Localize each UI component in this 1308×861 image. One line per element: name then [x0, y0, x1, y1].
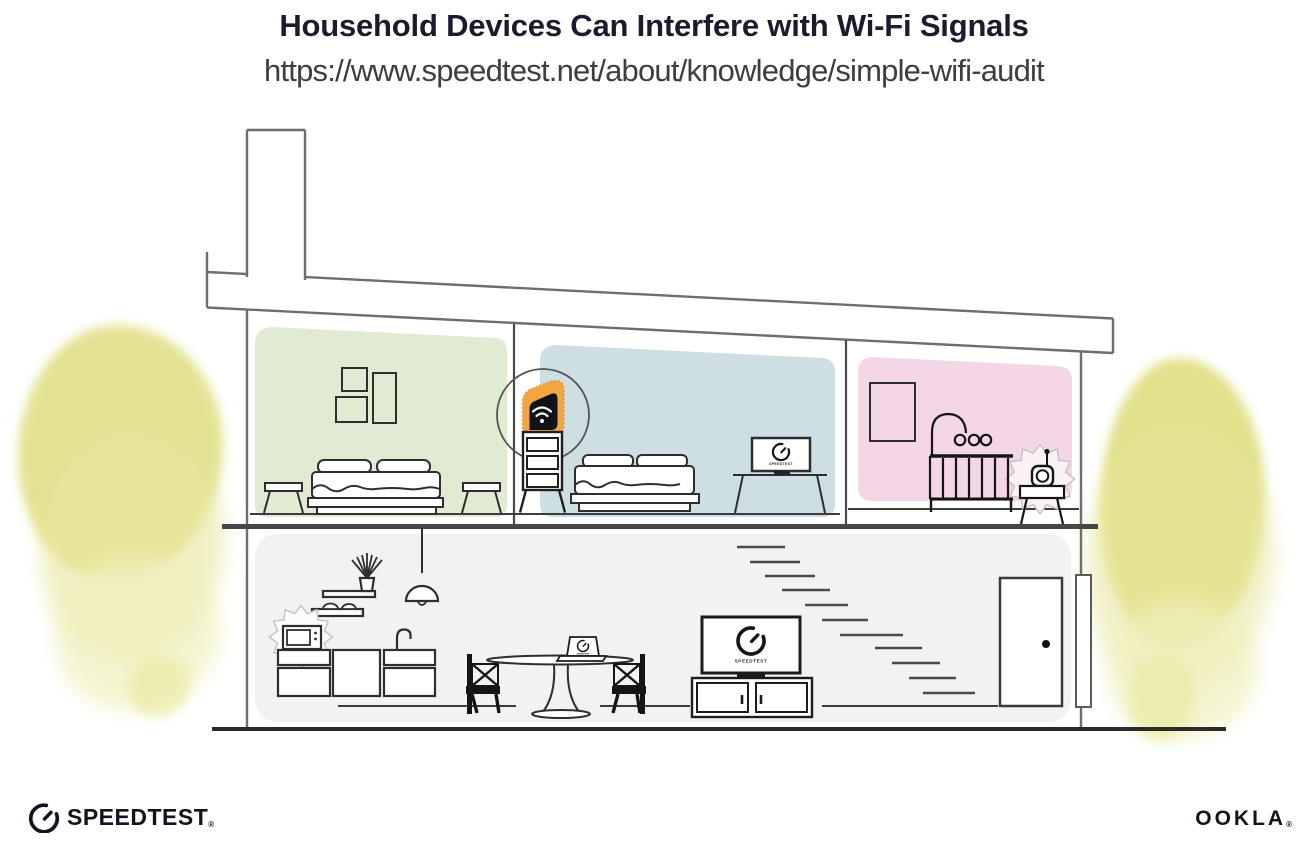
entry-door — [1000, 578, 1062, 706]
speedtest-logo: SPEEDTEST® — [28, 801, 214, 833]
media-console — [692, 678, 812, 717]
living-room-tv-area: SPEEDTEST — [692, 617, 812, 717]
bed-base — [571, 494, 699, 503]
registered-mark: ® — [1286, 820, 1292, 829]
plant-pot — [360, 578, 374, 591]
bed-base — [308, 498, 443, 507]
bed-plinth — [317, 507, 436, 514]
chimney-fill — [248, 131, 304, 278]
source-url: https://www.speedtest.net/about/knowledg… — [0, 53, 1308, 89]
bed-mattress — [575, 466, 694, 494]
speedtest-gauge-icon — [28, 801, 60, 833]
tv-base — [737, 673, 765, 677]
tv-screen-label: SPEEDTEST — [735, 659, 768, 664]
bedroom-monitor: SPEEDTEST — [752, 438, 810, 475]
bed-plinth — [579, 503, 690, 511]
speedtest-wordmark: SPEEDTEST — [67, 804, 208, 830]
microwave — [283, 626, 321, 649]
ookla-wordmark: OOKLA — [1195, 807, 1286, 830]
downspout — [1076, 575, 1091, 707]
bed-mattress — [312, 472, 440, 498]
page-title: Household Devices Can Interfere with Wi-… — [0, 8, 1308, 44]
tv-screen — [702, 617, 800, 673]
registered-mark: ® — [208, 820, 214, 829]
ookla-logo: OOKLA® — [1195, 806, 1292, 832]
door-knob — [1042, 640, 1050, 648]
monitor-stand — [774, 471, 790, 475]
house-cutaway-illustration: SPEEDTEST — [0, 0, 1308, 861]
monitor-screen-label: SPEEDTEST — [769, 462, 793, 466]
infographic-canvas: Household Devices Can Interfere with Wi-… — [0, 0, 1308, 861]
